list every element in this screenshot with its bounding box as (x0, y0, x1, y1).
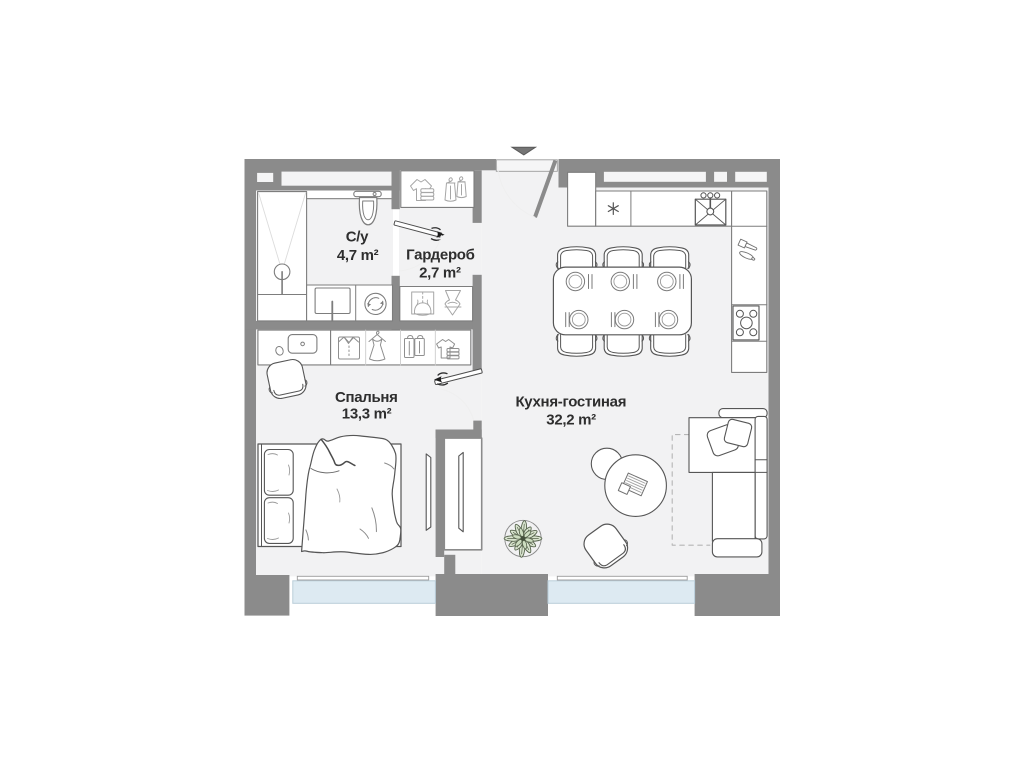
svg-text:32,2 m²: 32,2 m² (546, 411, 596, 428)
svg-text:2,7 m²: 2,7 m² (419, 264, 461, 281)
svg-text:Гардероб: Гардероб (406, 247, 475, 264)
svg-text:Кухня-гостиная: Кухня-гостиная (515, 393, 626, 410)
svg-text:4,7 m²: 4,7 m² (337, 247, 379, 264)
svg-text:13,3 m²: 13,3 m² (342, 406, 392, 423)
svg-text:С/у: С/у (346, 228, 369, 245)
svg-text:Спальня: Спальня (335, 389, 398, 406)
